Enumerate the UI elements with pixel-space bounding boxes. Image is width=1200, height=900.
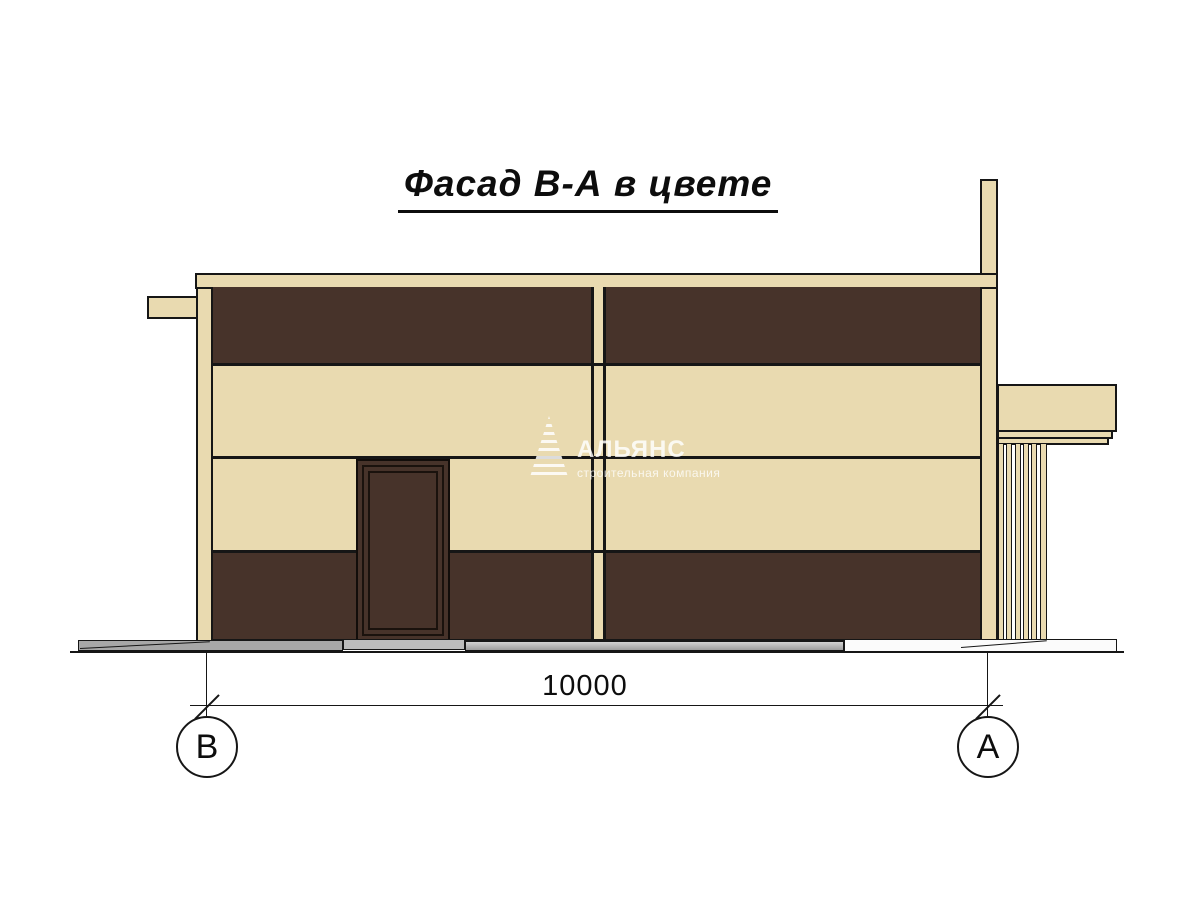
drawing-title: Фасад В-А в цвете <box>398 163 778 213</box>
door-threshold <box>343 639 465 650</box>
facade-center-joint <box>591 287 606 641</box>
axis-label-b: В <box>196 728 219 767</box>
dimension-value: 10000 <box>490 670 680 703</box>
corner-column-right <box>980 287 998 642</box>
axis-marker-a: А <box>957 716 1019 778</box>
corner-column-left <box>196 287 213 642</box>
facade-band-line <box>211 456 981 459</box>
roof-post <box>980 179 998 277</box>
side-canopy-fascia <box>997 437 1109 445</box>
canopy-slat <box>1015 443 1021 642</box>
left-wall-protrusion <box>147 296 198 319</box>
canopy-slat <box>1023 443 1029 642</box>
plinth-segment <box>465 641 844 651</box>
axis-marker-b: В <box>176 716 238 778</box>
door-leaf <box>368 471 438 630</box>
entrance-door <box>356 459 450 642</box>
dimension-line <box>190 705 1003 706</box>
facade-band-line <box>211 363 981 366</box>
facade-drawing-canvas: Фасад В-А в цвете 10000 В А <box>0 0 1200 900</box>
facade-band-line <box>211 550 981 553</box>
canopy-slat <box>1031 443 1037 642</box>
side-canopy <box>997 384 1117 432</box>
ground-line <box>70 651 1124 653</box>
canopy-slat <box>1040 443 1047 642</box>
axis-label-a: А <box>977 728 1000 767</box>
canopy-slat <box>1006 443 1012 642</box>
canopy-slat <box>998 443 1004 642</box>
